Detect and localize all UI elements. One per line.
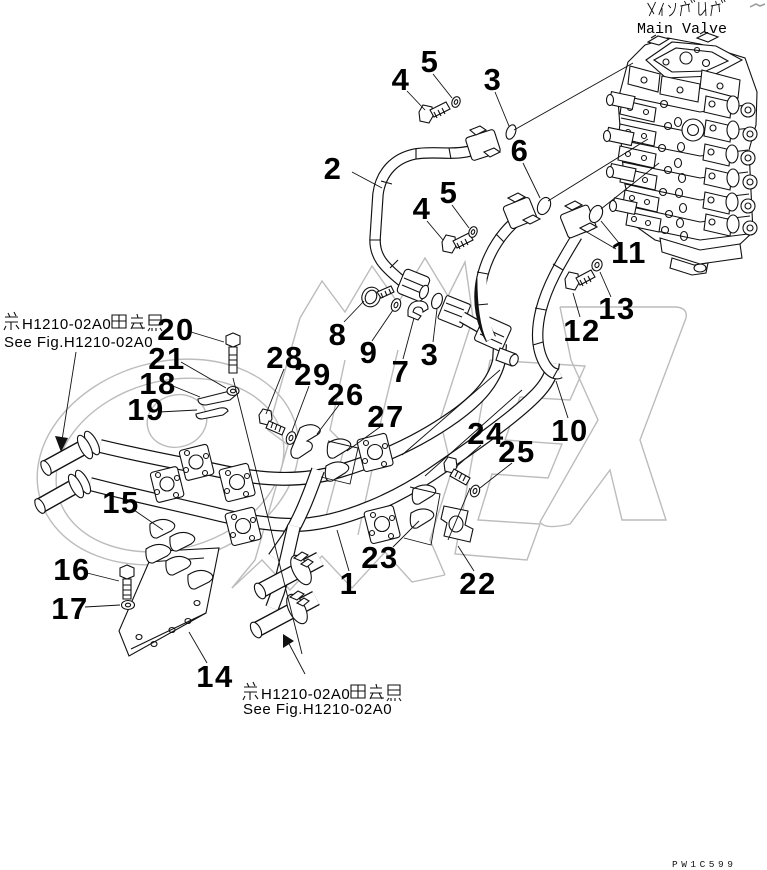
svg-text:5: 5 [440, 175, 459, 210]
svg-text:27: 27 [367, 399, 404, 434]
svg-text:2: 2 [324, 151, 343, 186]
svg-text:16: 16 [53, 552, 90, 587]
svg-text:25: 25 [498, 434, 535, 469]
svg-text:1: 1 [340, 566, 359, 601]
svg-text:23: 23 [361, 540, 398, 575]
svg-text:PW1C599: PW1C599 [672, 859, 736, 870]
svg-text:5: 5 [421, 44, 440, 79]
svg-text:3: 3 [421, 337, 440, 372]
svg-text:14: 14 [196, 659, 233, 694]
svg-text:26: 26 [327, 377, 364, 412]
svg-text:22: 22 [459, 566, 496, 601]
svg-text:19: 19 [127, 392, 164, 427]
svg-text:See Fig.H1210-02A0: See Fig.H1210-02A0 [243, 701, 392, 718]
svg-text:13: 13 [598, 291, 635, 326]
svg-text:4: 4 [413, 191, 432, 226]
svg-text:4: 4 [392, 62, 411, 97]
svg-text:29: 29 [294, 357, 331, 392]
svg-text:3: 3 [484, 62, 503, 97]
svg-text:H1210-02A0: H1210-02A0 [22, 316, 111, 333]
svg-text:11: 11 [611, 235, 647, 270]
svg-text:6: 6 [511, 133, 530, 168]
svg-text:9: 9 [360, 335, 379, 370]
svg-text:7: 7 [392, 354, 411, 389]
svg-text:12: 12 [563, 313, 600, 348]
svg-text:8: 8 [329, 317, 348, 352]
svg-text:17: 17 [51, 591, 88, 626]
svg-text:10: 10 [551, 413, 588, 448]
svg-text:15: 15 [102, 485, 139, 520]
svg-text:See Fig.H1210-02A0: See Fig.H1210-02A0 [4, 334, 153, 351]
